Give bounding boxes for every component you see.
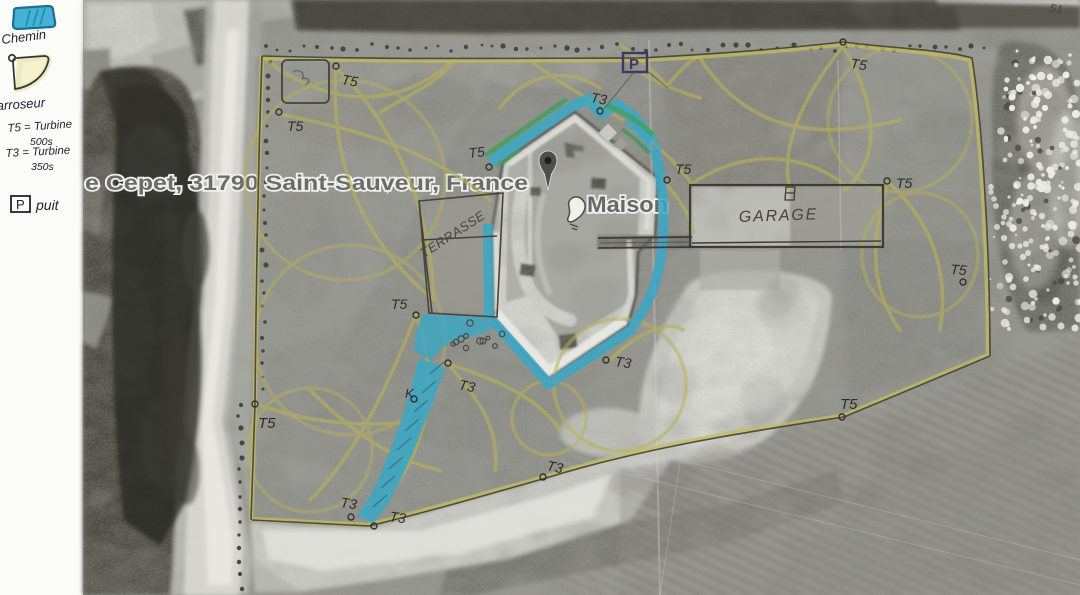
- svg-text:T3: T3: [389, 508, 408, 526]
- svg-text:Maison: Maison: [587, 192, 668, 217]
- svg-text:K: K: [405, 386, 415, 401]
- svg-text:51: 51: [1049, 1, 1064, 17]
- svg-text:T5: T5: [950, 261, 968, 278]
- svg-text:P: P: [629, 56, 639, 73]
- svg-text:T3: T3: [589, 89, 608, 108]
- svg-text:T5: T5: [896, 175, 913, 191]
- svg-text:T5: T5: [840, 396, 858, 413]
- svg-text:T5: T5: [850, 55, 869, 73]
- svg-text:350s: 350s: [31, 161, 55, 173]
- svg-text:T3: T3: [340, 494, 359, 512]
- svg-text:GARAGE: GARAGE: [739, 206, 819, 226]
- svg-text:P: P: [16, 197, 25, 212]
- svg-text:T5: T5: [391, 296, 408, 312]
- svg-text:T5: T5: [258, 415, 276, 432]
- svg-text:T5: T5: [287, 118, 304, 134]
- svg-text:T5: T5: [468, 143, 486, 161]
- svg-text:e Cepet, 31790 Saint-Sauveur,: e Cepet, 31790 Saint-Sauveur, France: [85, 171, 528, 195]
- svg-text:T3: T3: [614, 353, 633, 371]
- svg-text:T5: T5: [675, 161, 692, 177]
- svg-text:puit: puit: [35, 197, 60, 213]
- svg-text:T5: T5: [340, 71, 359, 90]
